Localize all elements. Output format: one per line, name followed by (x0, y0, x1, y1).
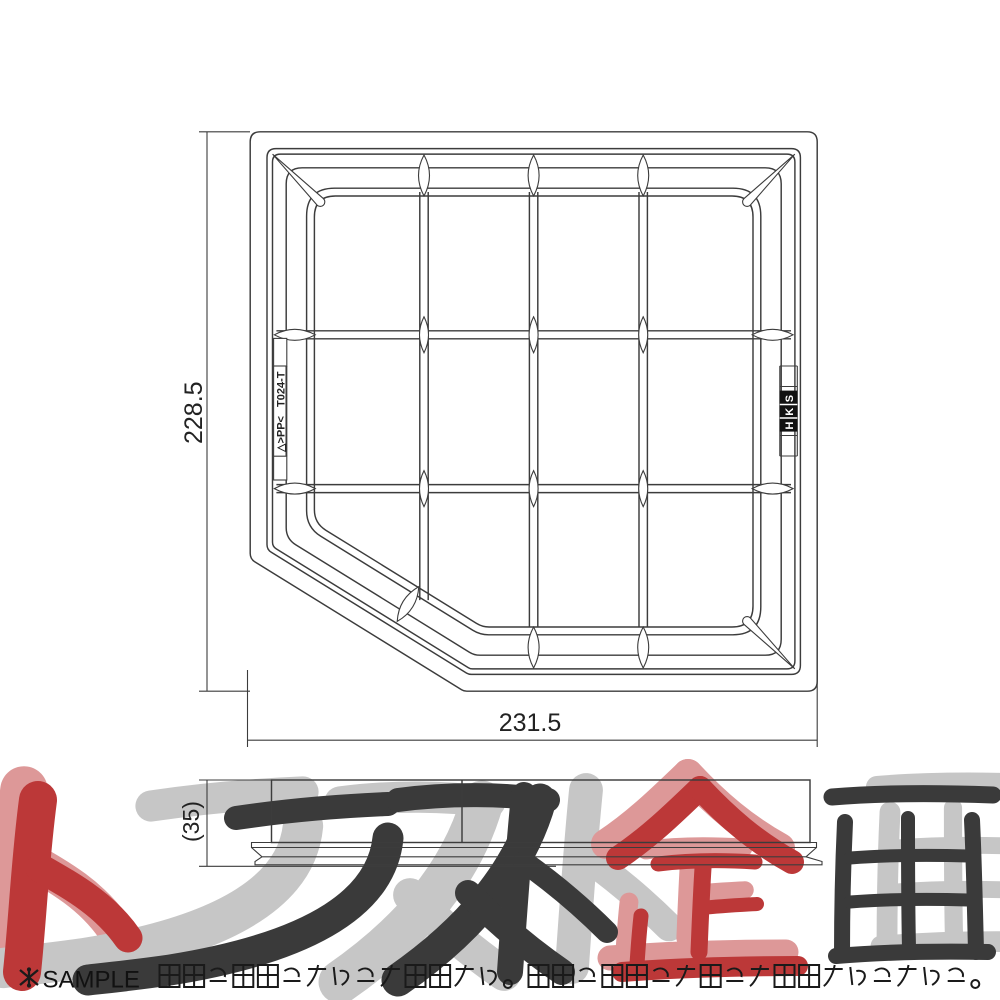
svg-text:△>PP<: △>PP< (276, 416, 288, 453)
svg-text:(35): (35) (178, 801, 204, 842)
svg-text:228.5: 228.5 (180, 381, 208, 444)
svg-text:231.5: 231.5 (499, 709, 562, 737)
svg-text:S: S (784, 395, 796, 402)
svg-text:SAMPLE: SAMPLE (43, 967, 140, 994)
svg-text:T024-T: T024-T (276, 371, 288, 407)
svg-text:H: H (784, 422, 796, 430)
svg-text:K: K (784, 408, 796, 416)
